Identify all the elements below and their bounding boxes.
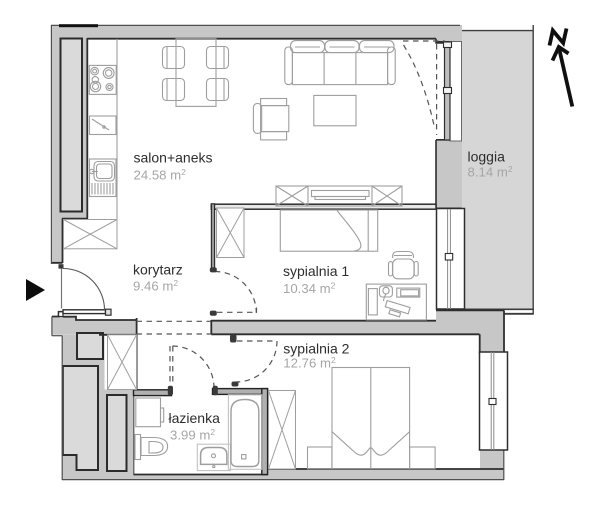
svg-text:12.76 m2: 12.76 m2 [283,355,336,371]
svg-text:3.99 m2: 3.99 m2 [170,427,215,443]
svg-text:9.46 m2: 9.46 m2 [133,278,178,294]
svg-text:sypialnia 2: sypialnia 2 [283,341,349,357]
svg-text:sypialnia 1: sypialnia 1 [283,263,349,279]
svg-text:salon+aneks: salon+aneks [134,150,213,166]
svg-text:łazienka: łazienka [169,410,221,426]
svg-text:24.58 m2: 24.58 m2 [134,167,187,183]
svg-text:10.34 m2: 10.34 m2 [283,281,336,297]
svg-text:8.14 m2: 8.14 m2 [468,164,513,180]
svg-text:korytarz: korytarz [133,262,183,278]
svg-text:loggia: loggia [468,149,506,165]
